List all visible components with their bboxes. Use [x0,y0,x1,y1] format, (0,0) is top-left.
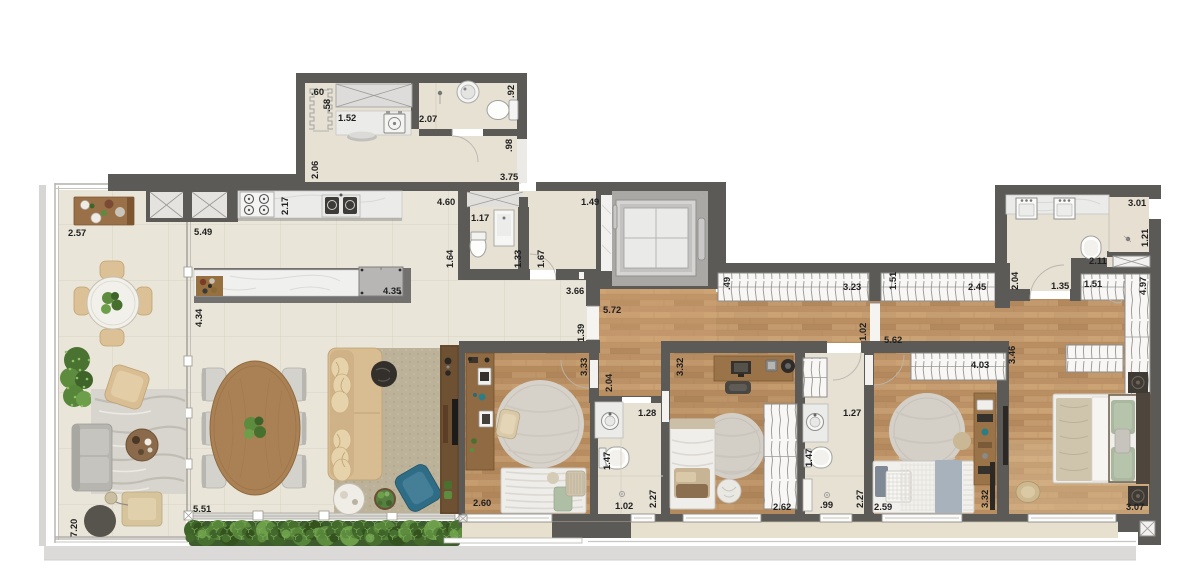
svg-text:2.11: 2.11 [1089,255,1107,266]
svg-text:3.75: 3.75 [500,171,518,182]
svg-text:.92: .92 [505,85,516,98]
svg-text:1.02: 1.02 [615,500,633,511]
svg-text:1.21: 1.21 [1139,229,1150,247]
svg-text:2.27: 2.27 [647,490,658,508]
svg-text:1.39: 1.39 [575,324,586,342]
svg-text:3.33: 3.33 [578,358,589,376]
svg-text:.60: .60 [311,86,324,97]
svg-text:.58: .58 [321,99,332,112]
svg-text:1.28: 1.28 [638,407,656,418]
svg-text:5.51: 5.51 [193,503,211,514]
svg-text:3.01: 3.01 [1128,197,1146,208]
svg-text:1.64: 1.64 [444,249,455,268]
svg-text:.98: .98 [503,139,514,152]
svg-text:1.47: 1.47 [803,449,814,467]
svg-text:3.32: 3.32 [979,490,990,508]
svg-text:4.34: 4.34 [193,308,204,327]
svg-text:2.57: 2.57 [68,227,86,238]
svg-text:1.52: 1.52 [338,112,356,123]
svg-text:.99: .99 [820,499,833,510]
svg-text:2.04: 2.04 [1009,271,1020,290]
svg-text:2.59: 2.59 [874,501,892,512]
svg-text:2.17: 2.17 [279,197,290,215]
svg-text:2.07: 2.07 [419,113,437,124]
svg-text:5.49: 5.49 [194,226,212,237]
svg-text:4.60: 4.60 [437,196,455,207]
svg-text:2.27: 2.27 [854,490,865,508]
svg-text:.49: .49 [721,277,732,290]
svg-text:4.35: 4.35 [383,285,401,296]
svg-text:4.03: 4.03 [971,359,989,370]
svg-text:1.51: 1.51 [887,272,898,290]
svg-text:1.49: 1.49 [581,196,599,207]
svg-text:2.04: 2.04 [603,373,614,392]
svg-text:5.72: 5.72 [603,304,621,315]
svg-text:1.17: 1.17 [471,212,489,223]
svg-text:1.47: 1.47 [601,452,612,470]
svg-text:1.27: 1.27 [843,407,861,418]
svg-text:1.33: 1.33 [512,250,523,268]
svg-text:1.02: 1.02 [857,323,868,341]
svg-text:3.23: 3.23 [843,281,861,292]
svg-text:4.97: 4.97 [1137,277,1148,295]
svg-text:2.62: 2.62 [773,501,791,512]
svg-text:7.20: 7.20 [68,519,79,537]
svg-text:1.67: 1.67 [535,250,546,268]
svg-text:3.46: 3.46 [1006,346,1017,364]
svg-text:2.06: 2.06 [309,161,320,179]
svg-text:5.62: 5.62 [884,334,902,345]
svg-text:2.45: 2.45 [968,281,986,292]
svg-text:1.51: 1.51 [1084,278,1102,289]
svg-text:3.07: 3.07 [1126,501,1144,512]
svg-text:1.35: 1.35 [1051,280,1069,291]
svg-text:3.66: 3.66 [566,285,584,296]
svg-text:3.32: 3.32 [674,358,685,376]
svg-text:2.60: 2.60 [473,497,491,508]
